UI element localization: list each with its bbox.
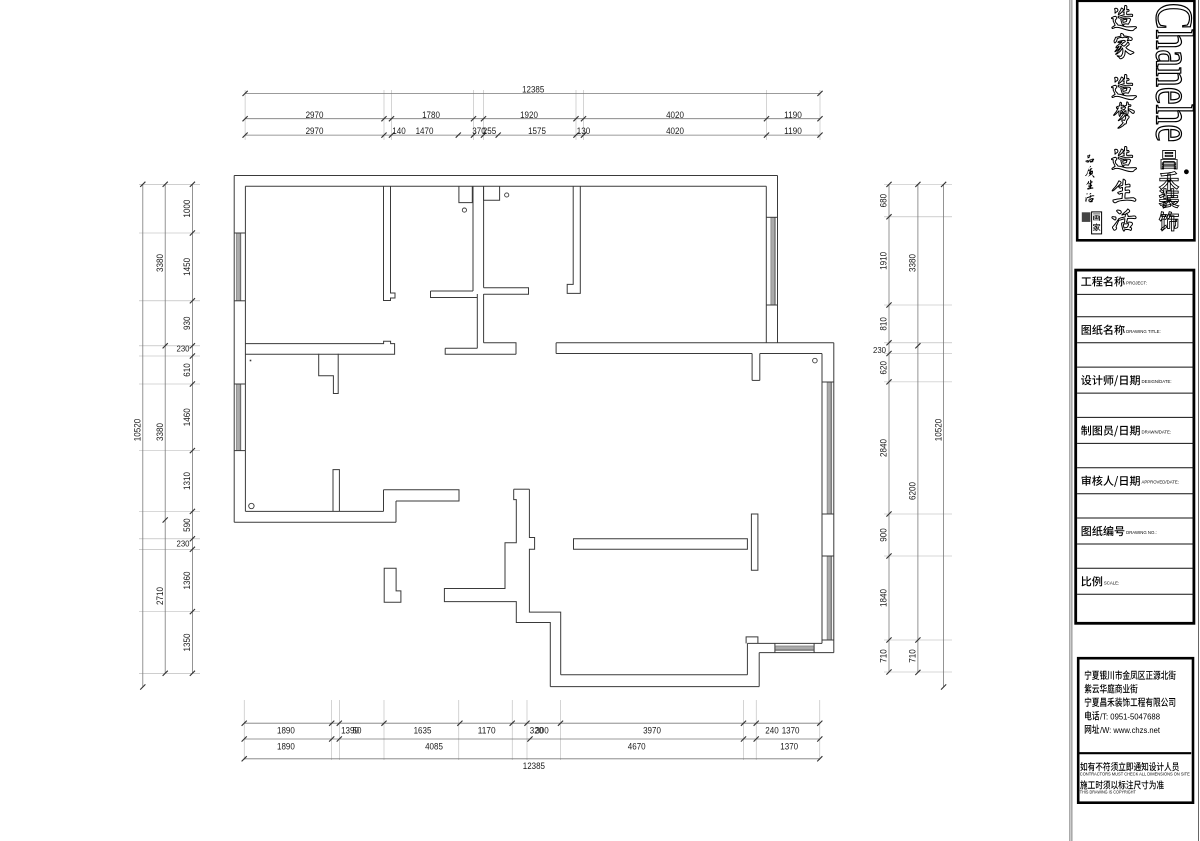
svg-text:680: 680 [879,194,889,208]
svg-text:2710: 2710 [155,587,165,605]
svg-text:4020: 4020 [666,109,684,120]
svg-text:930: 930 [182,316,192,330]
svg-text:1780: 1780 [422,109,440,120]
svg-text:1890: 1890 [277,740,295,751]
svg-text:300: 300 [535,724,548,735]
svg-text:710: 710 [908,649,918,663]
svg-text:4020: 4020 [666,125,684,136]
svg-text:DRAWN/DATE:: DRAWN/DATE: [1142,429,1172,434]
svg-text:DRAWING TITLE:: DRAWING TITLE: [1126,329,1161,334]
svg-text:240: 240 [765,724,778,735]
svg-text:255: 255 [483,125,496,136]
svg-text:1910: 1910 [879,252,889,270]
svg-text:610: 610 [182,363,192,377]
svg-text:1370: 1370 [780,740,798,751]
svg-text:1460: 1460 [182,408,192,426]
svg-text:1190: 1190 [784,125,802,136]
svg-text:10520: 10520 [133,419,143,442]
svg-text:140: 140 [392,125,405,136]
svg-text:1190: 1190 [784,109,802,120]
svg-text:1170: 1170 [478,724,496,735]
svg-text:10520: 10520 [933,419,943,442]
svg-text:50: 50 [353,724,362,735]
svg-text:1360: 1360 [182,571,192,589]
svg-text:PROJECT:: PROJECT: [1126,280,1147,285]
svg-text:/W: www.chzs.net: /W: www.chzs.net [1100,726,1161,735]
svg-text:APPROVED/DATE:: APPROVED/DATE: [1142,480,1179,485]
svg-text:230: 230 [176,345,190,354]
svg-text:1310: 1310 [182,472,192,490]
svg-text:1470: 1470 [416,125,434,136]
svg-text:4085: 4085 [425,740,443,751]
svg-text:1000: 1000 [182,200,192,218]
svg-text:SCALE:: SCALE: [1104,580,1119,585]
svg-text:12385: 12385 [523,760,545,771]
svg-text:230: 230 [873,346,887,355]
svg-text:1635: 1635 [414,724,432,735]
svg-text:230: 230 [176,540,190,549]
svg-text:12385: 12385 [522,83,544,94]
svg-text:1575: 1575 [528,125,546,136]
svg-text:2840: 2840 [879,439,889,457]
svg-text:DESIGN/DATE:: DESIGN/DATE: [1142,379,1172,384]
svg-text:CONTRACTORS MUST CHECK ALL DIM: CONTRACTORS MUST CHECK ALL DIMENSIONS ON… [1080,772,1190,777]
svg-text:1350: 1350 [182,633,192,651]
svg-text:1840: 1840 [879,589,889,607]
svg-text:6200: 6200 [908,482,918,500]
svg-text:3380: 3380 [155,254,165,272]
svg-text:130: 130 [577,125,590,136]
svg-text:3970: 3970 [643,724,661,735]
svg-text:710: 710 [879,649,889,663]
svg-text:1920: 1920 [520,109,538,120]
svg-text:1370: 1370 [782,724,800,735]
svg-text:900: 900 [879,528,889,542]
svg-text:THIS DRAWING IS COPYRIGHT: THIS DRAWING IS COPYRIGHT [1080,789,1136,794]
svg-text:2970: 2970 [306,109,324,120]
svg-text:2970: 2970 [306,125,324,136]
svg-text:1450: 1450 [182,258,192,276]
svg-text:810: 810 [879,317,889,331]
svg-text:4670: 4670 [628,740,646,751]
svg-text:620: 620 [879,361,889,375]
svg-text:DRAWING NO.:: DRAWING NO.: [1126,530,1157,535]
svg-text:590: 590 [182,518,192,532]
svg-text:1890: 1890 [277,724,295,735]
svg-text:3380: 3380 [908,254,918,272]
svg-text:/T: 0951-5047688: /T: 0951-5047688 [1100,713,1161,722]
svg-text:3380: 3380 [155,423,165,441]
